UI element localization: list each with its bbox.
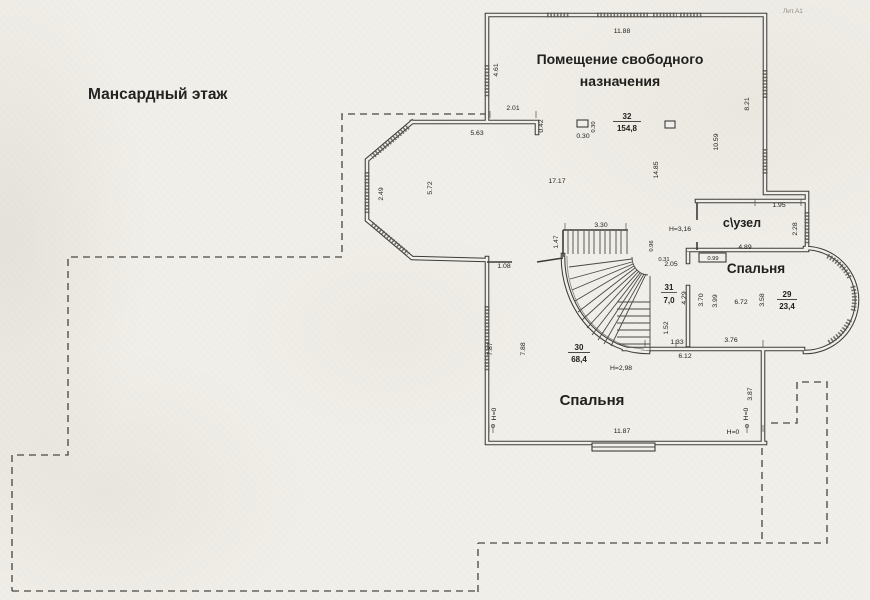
dim-hall-stub: 1.08	[497, 263, 510, 270]
room32-name-line1: Помещение свободного	[537, 51, 704, 67]
flue-shaft-1	[577, 120, 588, 127]
stair-inner-rail	[632, 257, 650, 352]
dim-landing: 1.33	[670, 339, 683, 346]
window-bay-diag-2	[372, 224, 408, 254]
dim-stair-c: 2.05	[664, 261, 677, 268]
dim-br30-bottom: 11.87	[614, 428, 631, 435]
mark-h0-c: Н=0	[491, 407, 498, 420]
dim-br29-left-a: 3.70	[698, 293, 705, 306]
text-labels: Мансардный этаж Лит.А1 Помещение свободн…	[88, 8, 803, 436]
dim-br30-left-out: 7.87	[487, 342, 494, 355]
dim-right-wall-upper: 8.21	[744, 97, 751, 110]
dim-br30-left-in: 7.88	[520, 342, 527, 355]
dim-br29-notch: 0.99	[707, 256, 718, 262]
room31-number: 31	[665, 283, 674, 292]
flue-shaft-2	[665, 121, 675, 128]
dim-stair-d: 4.29	[681, 291, 688, 304]
dim-interior-span: 14.85	[653, 161, 660, 178]
room29-number: 29	[783, 290, 792, 299]
dim-bay-width: 5.72	[427, 181, 434, 194]
dim-br29-right: 3.58	[759, 293, 766, 306]
dim-stair-run: 3.30	[594, 222, 607, 229]
room32-number: 32	[623, 112, 632, 121]
dim-top-wall: 11.88	[614, 28, 631, 35]
dim-hall-top: 5.63	[470, 130, 483, 137]
dim-right-inner: 10.59	[713, 133, 720, 150]
room30-number: 30	[575, 343, 584, 352]
dim-stair-width: 1.47	[553, 235, 560, 248]
room29-name: Спальня	[727, 261, 785, 276]
dim-bay-window: 2.49	[378, 187, 385, 200]
interior-walls	[487, 120, 726, 262]
dim-wc-top: 1.95	[772, 202, 785, 209]
scanned-floor-plan: Мансардный этаж Лит.А1 Помещение свободн…	[0, 0, 870, 600]
sheet-mark: Лит.А1	[783, 8, 803, 15]
mark-h0-a: Н=0	[727, 429, 740, 436]
dim-br30-right: 3.87	[747, 387, 754, 400]
dim-br29-width: 6.72	[734, 299, 747, 306]
wc-name: с\узел	[723, 216, 761, 230]
dashed-roof-outline	[12, 114, 827, 592]
dim-hall-length: 17.17	[548, 178, 565, 185]
window-bay-diag-1	[372, 127, 408, 157]
dim-landing-total: 6.12	[678, 353, 691, 360]
floor-plan-drawing: Мансардный этаж Лит.А1 Помещение свободн…	[0, 0, 870, 600]
dim-stub: 0.42	[538, 119, 545, 132]
room30-name: Спальня	[560, 392, 625, 409]
room31-area: 7,0	[663, 296, 675, 305]
mark-h0-b: Н=0	[743, 407, 750, 420]
dim-br29-bottom: 3.76	[724, 337, 737, 344]
dim-left-wall-upper: 4.61	[493, 63, 500, 76]
mark-h298: Н=2,98	[610, 365, 632, 372]
dim-passage: 2.01	[506, 105, 519, 112]
room32-name-line2: назначения	[580, 73, 660, 89]
dim-wc-right: 2.28	[792, 222, 799, 235]
room29-area: 23,4	[779, 302, 795, 311]
dim-flue-w: 0.30	[576, 133, 589, 140]
floor-title: Мансардный этаж	[88, 86, 228, 103]
dim-br29-left-b: 3.99	[712, 294, 719, 307]
dim-flue-h: 0.30	[591, 121, 597, 132]
room32-area: 154,8	[617, 124, 638, 133]
dim-stair-e: 1.52	[663, 321, 670, 334]
staircase	[563, 230, 650, 352]
room30-area: 68,4	[571, 355, 587, 364]
stair-treads	[568, 231, 650, 346]
dim-wc-width: 4.89	[738, 244, 751, 251]
mark-h316: Н=3,16	[669, 226, 691, 233]
dim-stair-a: 0.96	[649, 240, 655, 251]
